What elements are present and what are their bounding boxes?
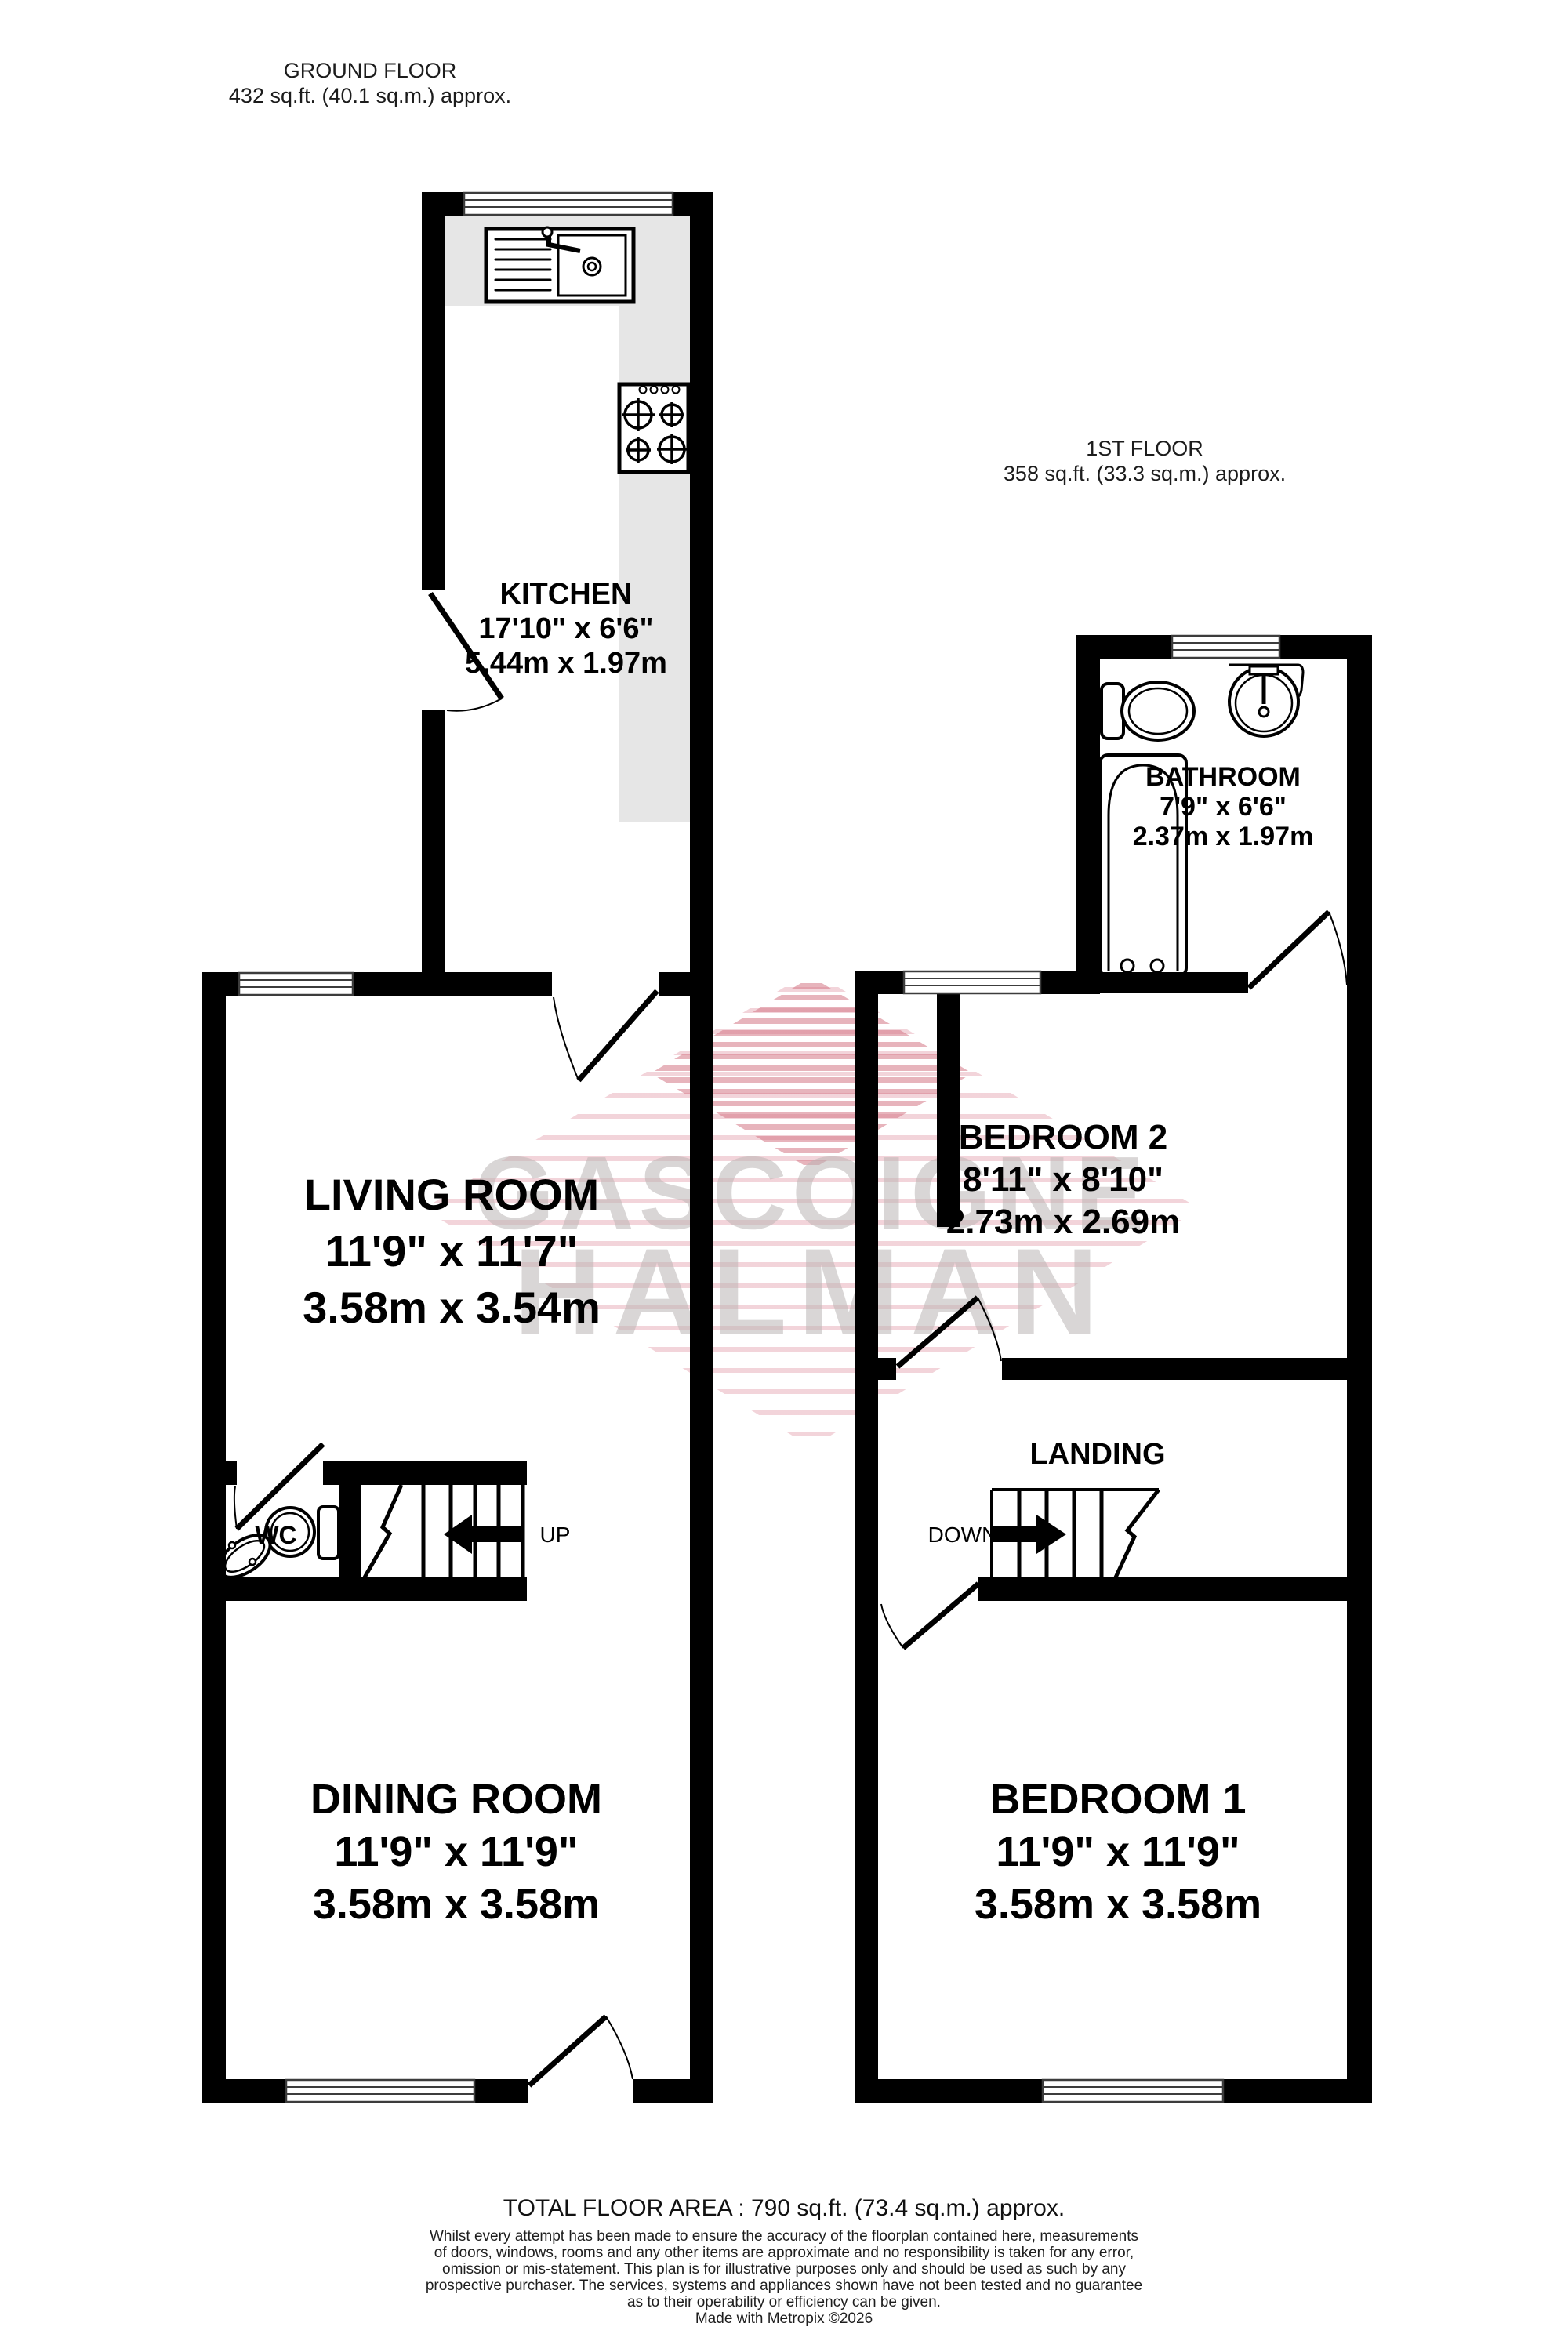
first-floor-title: 1ST FLOOR: [1086, 436, 1203, 461]
total-floor-area: TOTAL FLOOR AREA : 790 sq.ft. (73.4 sq.m…: [503, 2195, 1065, 2222]
stairs-down-label: DOWN: [928, 1523, 998, 1548]
bedroom1-metric: 3.58m x 3.58m: [975, 1878, 1261, 1931]
living-room-window: [239, 973, 353, 995]
bedroom2-label: BEDROOM 2 8'11" x 8'10" 2.73m x 2.69m: [946, 1116, 1180, 1243]
bedroom2-window: [904, 971, 1040, 993]
bathroom-metric: 2.37m x 1.97m: [1133, 822, 1314, 851]
dining-room-metric: 3.58m x 3.58m: [310, 1878, 602, 1931]
floorplan: GASCOIGNE HALMAN: [0, 0, 1568, 2352]
bathroom-toilet-icon: [1102, 682, 1194, 740]
dining-room-name: DINING ROOM: [310, 1773, 602, 1826]
disclaimer-line-3: omission or mis-statement. This plan is …: [442, 2261, 1126, 2278]
bedroom2-name: BEDROOM 2: [946, 1116, 1180, 1159]
bedroom1-label: BEDROOM 1 11'9" x 11'9" 3.58m x 3.58m: [975, 1773, 1261, 1931]
living-room-name: LIVING ROOM: [303, 1167, 601, 1223]
bedroom1-name: BEDROOM 1: [975, 1773, 1261, 1826]
bathroom-name: BATHROOM: [1133, 762, 1314, 792]
stairs-up-label: UP: [540, 1523, 571, 1548]
living-room-label: LIVING ROOM 11'9" x 11'7" 3.58m x 3.54m: [303, 1167, 601, 1336]
floorplan-drawing: [0, 0, 1568, 2352]
landing-label: LANDING: [1029, 1438, 1165, 1472]
first-floor-stairs: [992, 1490, 1159, 1577]
kitchen-window: [464, 193, 673, 215]
bedroom2-imperial: 8'11" x 8'10": [946, 1159, 1180, 1201]
bedroom1-window: [1043, 2080, 1223, 2102]
kitchen-counter: [445, 216, 690, 822]
dining-room-window: [286, 2080, 474, 2102]
metropix-credit: Made with Metropix ©2026: [695, 2310, 873, 2327]
stair-break-line: [1116, 1490, 1159, 1577]
kitchen-label: KITCHEN 17'10" x 6'6" 5.44m x 1.97m: [465, 577, 667, 681]
kitchen-imperial: 17'10" x 6'6": [465, 612, 667, 646]
kitchen-metric: 5.44m x 1.97m: [465, 646, 667, 681]
kitchen-name: KITCHEN: [465, 577, 667, 612]
ground-floor-area: 432 sq.ft. (40.1 sq.m.) approx.: [229, 83, 511, 108]
bathroom-imperial: 7'9" x 6'6": [1133, 792, 1314, 822]
bathroom-sink-icon: [1229, 665, 1303, 736]
ground-floor-title: GROUND FLOOR: [284, 58, 457, 83]
up-arrow-icon: [444, 1515, 521, 1554]
dining-room-imperial: 11'9" x 11'9": [310, 1826, 602, 1878]
disclaimer-line-4: prospective purchaser. The services, sys…: [426, 2278, 1142, 2294]
living-room-imperial: 11'9" x 11'7": [303, 1223, 601, 1279]
bathroom-label: BATHROOM 7'9" x 6'6" 2.37m x 1.97m: [1133, 762, 1314, 851]
first-floor-area: 358 sq.ft. (33.3 sq.m.) approx.: [1004, 461, 1286, 486]
disclaimer-line-2: of doors, windows, rooms and any other i…: [434, 2245, 1134, 2261]
bedroom2-metric: 2.73m x 2.69m: [946, 1201, 1180, 1243]
kitchen-sink-icon: [486, 227, 633, 302]
disclaimer-line-5: as to their operability or efficiency ca…: [627, 2294, 941, 2310]
bathroom-window: [1172, 636, 1279, 658]
kitchen-hob-icon: [619, 384, 688, 472]
stair-break-line: [365, 1485, 401, 1577]
bedroom1-imperial: 11'9" x 11'9": [975, 1826, 1261, 1878]
wc-label: WC: [255, 1521, 296, 1550]
down-arrow-icon: [992, 1515, 1066, 1554]
ground-floor-stairs: [365, 1485, 523, 1577]
living-room-metric: 3.58m x 3.54m: [303, 1279, 601, 1336]
disclaimer-line-1: Whilst every attempt has been made to en…: [430, 2228, 1138, 2245]
dining-room-label: DINING ROOM 11'9" x 11'9" 3.58m x 3.58m: [310, 1773, 602, 1931]
